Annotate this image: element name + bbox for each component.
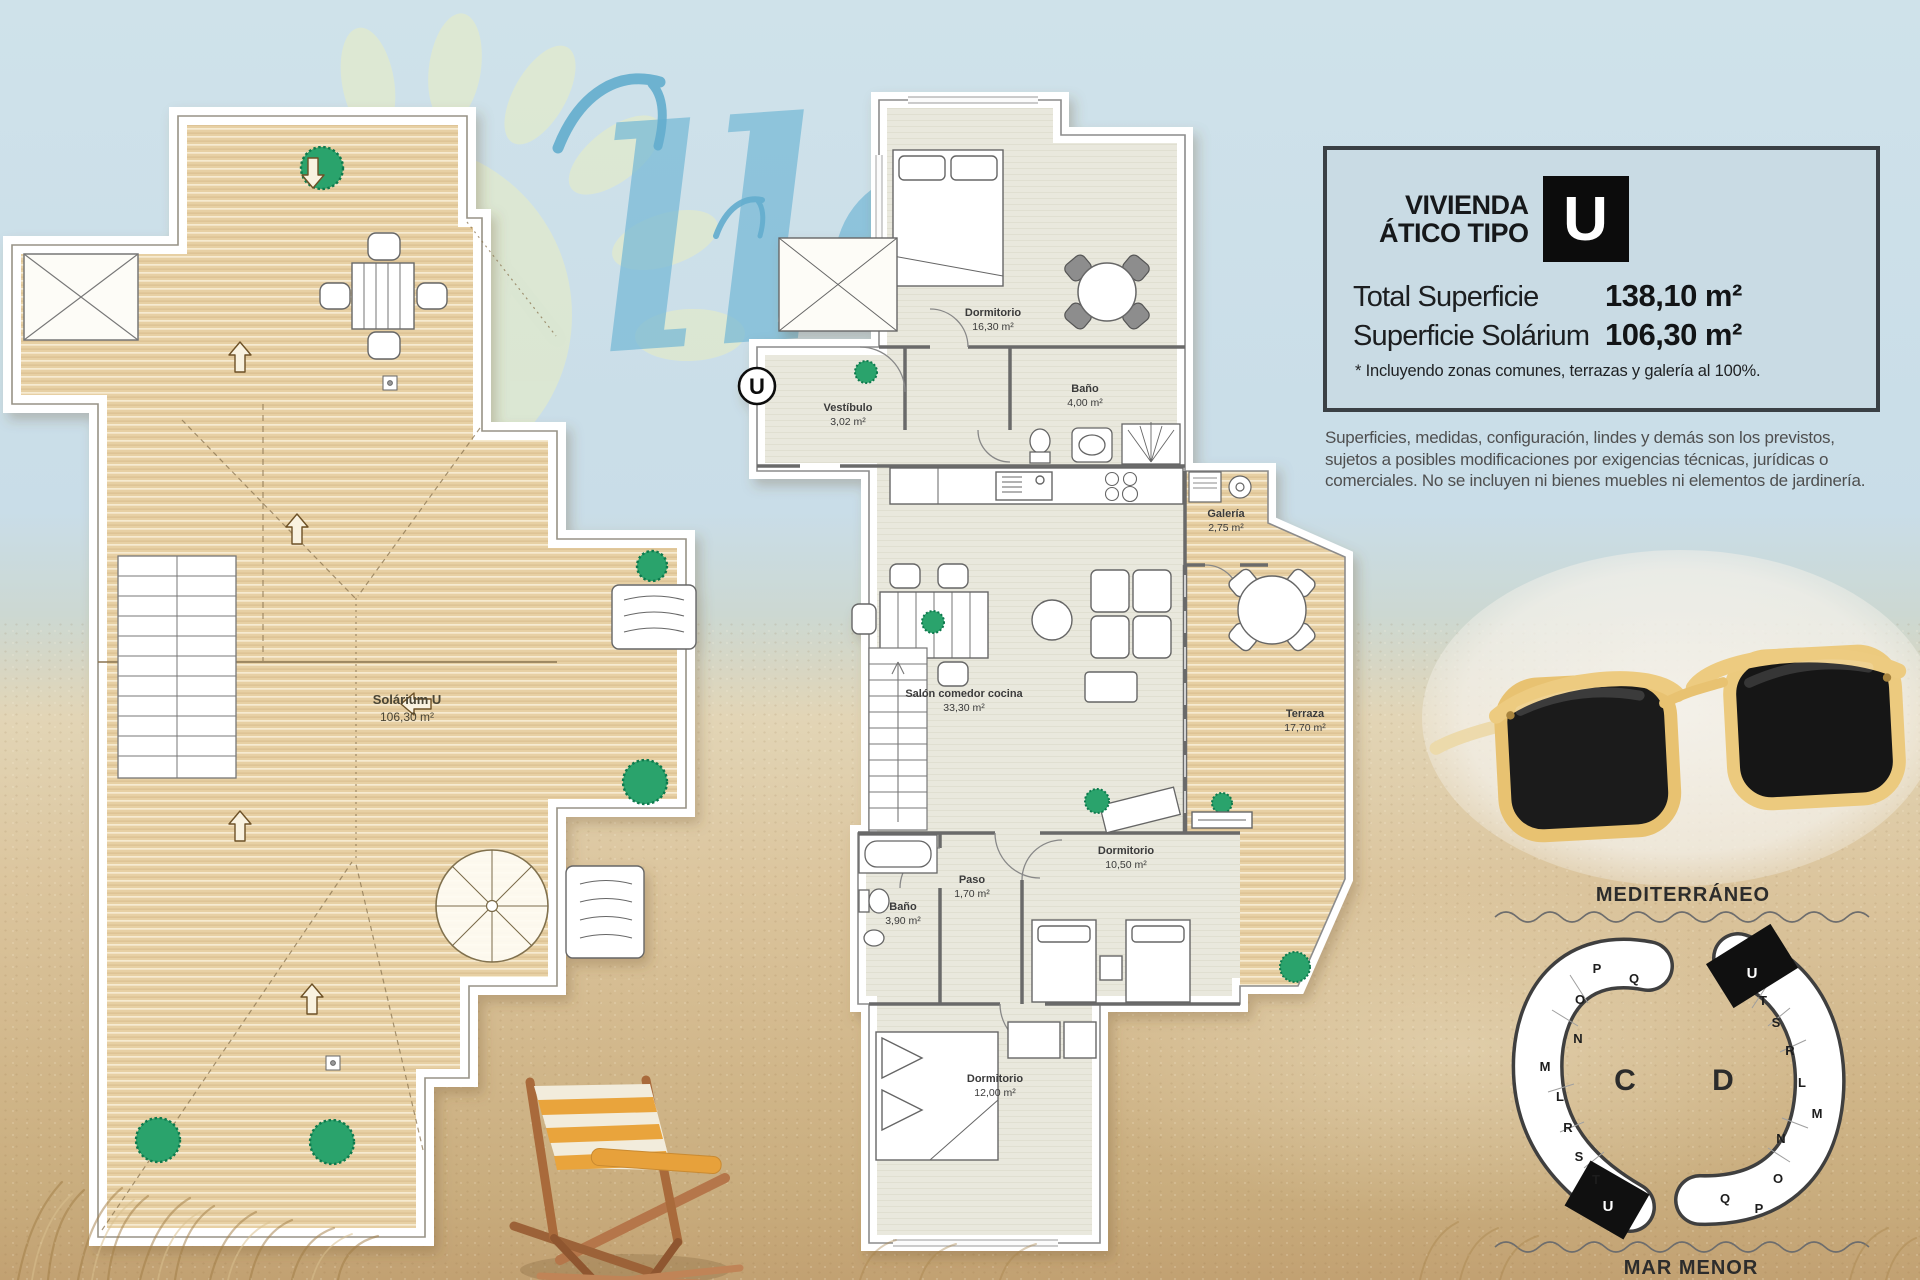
panel-title: VIVIENDA ÁTICO TIPO: [1379, 191, 1529, 248]
laundry-appliances: [1189, 472, 1251, 502]
svg-text:U: U: [1747, 965, 1758, 982]
unit-type-badge: U: [1543, 176, 1629, 262]
svg-text:M: M: [1812, 1106, 1823, 1121]
svg-text:33,30 m²: 33,30 m²: [943, 702, 985, 714]
sea-label-north: MEDITERRÁNEO: [1596, 883, 1770, 906]
sunglasses-right-lens: [1728, 649, 1902, 805]
svg-text:L: L: [1556, 1089, 1564, 1104]
svg-text:Q: Q: [1720, 1191, 1730, 1206]
wave-line: [1495, 1242, 1869, 1252]
unit-marker-badge: U: [739, 368, 775, 404]
solarium-room-label: Solárium U: [373, 692, 442, 707]
deck-chair-photo: [514, 1080, 740, 1280]
svg-text:T: T: [1759, 993, 1767, 1008]
sunglasses-photo: [1422, 550, 1920, 886]
svg-text:M: M: [1540, 1059, 1551, 1074]
svg-text:1,70 m²: 1,70 m²: [954, 888, 990, 900]
svg-text:16,30 m²: 16,30 m²: [972, 321, 1014, 333]
room-label: Dormitorio: [965, 307, 1022, 319]
legal-disclaimer: Superficies, medidas, configuración, lin…: [1325, 427, 1885, 492]
solarium-stairs: [118, 556, 236, 778]
room-label: Terraza: [1286, 708, 1325, 720]
room-label: Vestíbulo: [824, 402, 873, 414]
solarium-floor-plan: Solárium U 106,30 m²: [12, 116, 696, 1237]
svg-text:10,50 m²: 10,50 m²: [1105, 859, 1147, 871]
main-floor-plan: U Dormitorio 16,30 m² Baño 4,00 m² Vestí…: [739, 97, 1345, 1246]
solarium-area-label: Superficie Solárium: [1353, 320, 1605, 353]
spec-rows: Total Superficie 138,10 m² Superficie So…: [1353, 278, 1876, 356]
building-block-c: [1538, 964, 1650, 1240]
svg-text:U: U: [1603, 1198, 1614, 1215]
solarium-room-area: 106,30 m²: [380, 710, 434, 724]
total-area-label: Total Superficie: [1353, 281, 1605, 314]
solarium-area-value: 106,30 m²: [1605, 317, 1876, 353]
panel-title-row: VIVIENDA ÁTICO TIPO U: [1379, 176, 1876, 262]
wardrobe-icon: [779, 238, 897, 331]
lounge-chair: [566, 866, 644, 958]
wave-line: [1495, 912, 1869, 922]
plant-icon: [922, 611, 944, 633]
site-map: MEDITERRÁNEO P Q O N M L R S T U: [1495, 883, 1869, 1279]
svg-text:O: O: [1575, 992, 1585, 1007]
pergola-trellis: [24, 254, 138, 340]
room-label: Dormitorio: [1098, 845, 1155, 857]
svg-text:S: S: [1575, 1149, 1584, 1164]
block-c-label: C: [1614, 1064, 1636, 1097]
svg-text:P: P: [1593, 961, 1602, 976]
unit-info-panel: VIVIENDA ÁTICO TIPO U Total Superficie 1…: [1323, 146, 1880, 412]
svg-text:N: N: [1776, 1131, 1785, 1146]
room-label: Galería: [1207, 508, 1245, 520]
room-label: Baño: [889, 901, 917, 913]
svg-text:R: R: [1785, 1043, 1795, 1058]
svg-text:3,02 m²: 3,02 m²: [830, 416, 866, 428]
room-label: Dormitorio: [967, 1073, 1024, 1085]
lounge-chair: [612, 585, 696, 649]
room-label: Salón comedor cocina: [905, 688, 1023, 700]
svg-text:L: L: [1798, 1075, 1806, 1090]
title-line-2: ÁTICO TIPO: [1379, 219, 1529, 247]
interior-stairs: [869, 648, 927, 830]
svg-text:P: P: [1755, 1201, 1764, 1216]
total-area-row: Total Superficie 138,10 m²: [1353, 278, 1876, 317]
svg-text:17,70 m²: 17,70 m²: [1284, 722, 1326, 734]
svg-text:2,75 m²: 2,75 m²: [1208, 522, 1244, 534]
room-label: Baño: [1071, 383, 1099, 395]
double-bed: [893, 150, 1003, 286]
title-line-1: VIVIENDA: [1379, 191, 1529, 219]
solarium-area-row: Superficie Solárium 106,30 m²: [1353, 317, 1876, 356]
svg-text:4,00 m²: 4,00 m²: [1067, 397, 1103, 409]
svg-text:3,90 m²: 3,90 m²: [885, 915, 921, 927]
parasol-icon: [436, 850, 548, 962]
total-area-value: 138,10 m²: [1605, 278, 1876, 314]
building-block-d: [1700, 924, 1820, 1200]
room-label: Paso: [959, 874, 986, 886]
svg-text:U: U: [749, 374, 765, 399]
svg-text:N: N: [1573, 1031, 1582, 1046]
svg-text:S: S: [1772, 1015, 1781, 1030]
block-d-label: D: [1712, 1064, 1734, 1097]
kitchen-counter: [890, 468, 1183, 504]
svg-text:Q: Q: [1629, 971, 1639, 986]
sea-label-south: MAR MENOR: [1624, 1257, 1759, 1279]
svg-text:R: R: [1563, 1120, 1573, 1135]
panel-footnote: * Incluyendo zonas comunes, terrazas y g…: [1355, 362, 1876, 381]
svg-text:T: T: [1592, 1172, 1600, 1187]
svg-text:O: O: [1773, 1171, 1783, 1186]
svg-text:12,00 m²: 12,00 m²: [974, 1087, 1016, 1099]
